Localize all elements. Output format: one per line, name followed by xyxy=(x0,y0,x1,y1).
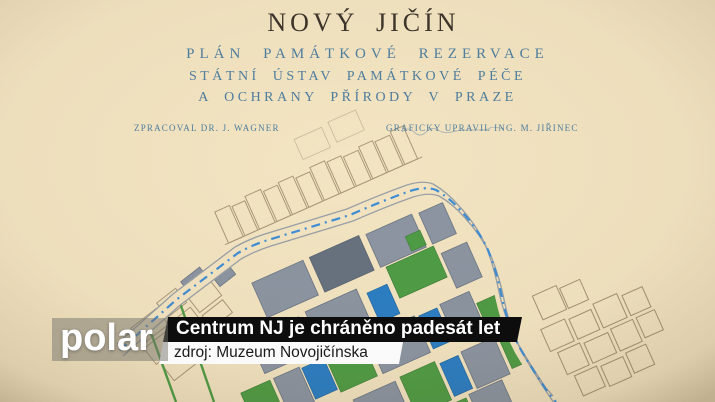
channel-logo-text: polar xyxy=(60,318,153,359)
banner-source-bar: zdroj: Muzeum Novojičínska xyxy=(158,342,403,364)
banner-headline-bar: Centrum NJ je chráněno padesát let xyxy=(158,317,522,342)
banner-source: zdroj: Muzeum Novojičínska xyxy=(158,342,403,363)
tv-frame: NOVÝ JIČÍN PLÁN PAMÁTKOVÉ REZERVACE STÁT… xyxy=(0,0,715,402)
channel-logo: polar xyxy=(52,318,168,361)
banner-headline: Centrum NJ je chráněno padesát let xyxy=(158,317,522,341)
